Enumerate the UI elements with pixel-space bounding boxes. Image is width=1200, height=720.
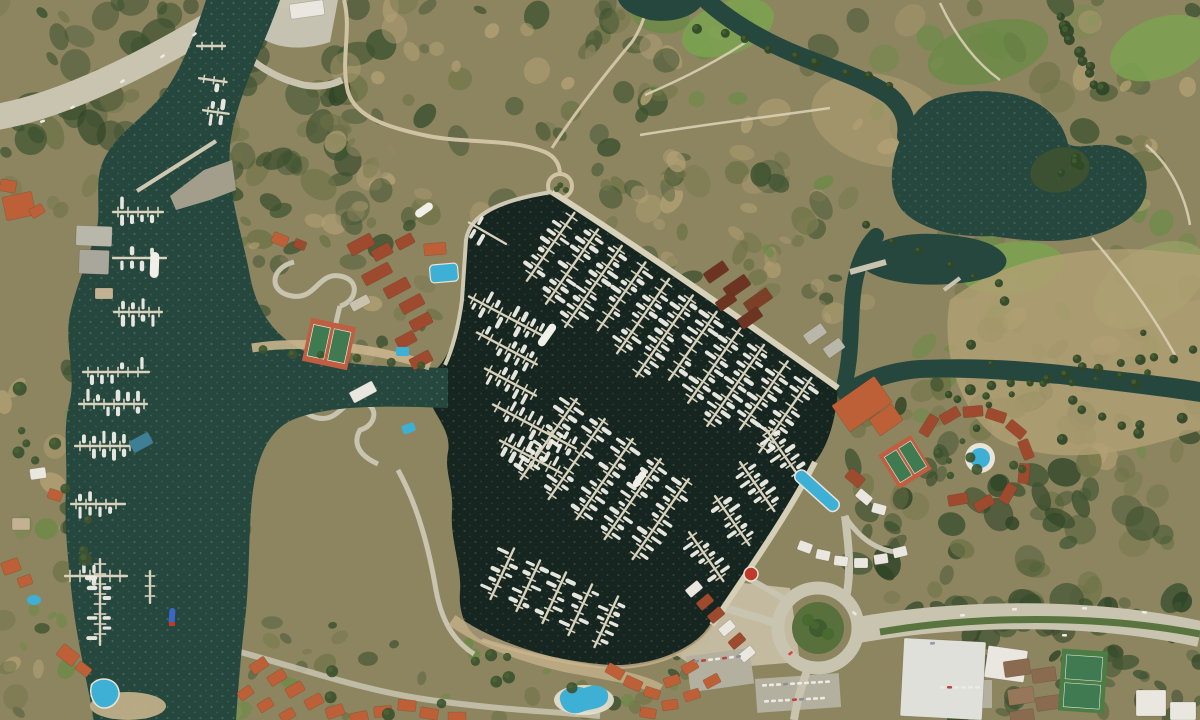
car [975, 686, 980, 689]
tree-highlight [504, 673, 510, 679]
car [940, 686, 945, 689]
car [769, 683, 774, 686]
tree-highlight [1135, 429, 1140, 434]
car [806, 697, 811, 700]
car [811, 681, 816, 684]
tree-highlight [14, 448, 19, 453]
building-roof [1136, 690, 1166, 716]
car [804, 681, 809, 684]
car [799, 698, 804, 701]
building-roof [424, 242, 447, 256]
tree-highlight [1091, 81, 1095, 85]
car [762, 684, 767, 687]
car [790, 682, 795, 685]
tree-highlight [974, 425, 977, 428]
car [1082, 607, 1087, 610]
tree-highlight [824, 630, 829, 635]
car [776, 683, 781, 686]
tree-highlight [947, 459, 950, 462]
tree-highlight [388, 359, 392, 363]
dry-fairway [947, 249, 1200, 455]
tree-highlight [1001, 297, 1005, 301]
building-roof [398, 699, 417, 712]
tree-highlight [983, 393, 986, 396]
tree-highlight [1190, 347, 1194, 351]
tree-highlight [986, 402, 989, 405]
car [1142, 611, 1147, 614]
tree-highlight [1069, 380, 1072, 383]
tree-highlight [326, 693, 331, 698]
building-roof [29, 467, 46, 480]
tree-highlight [487, 651, 493, 657]
tree-highlight [1119, 423, 1123, 427]
tree-highlight [1131, 379, 1136, 384]
tree-highlight [793, 53, 797, 57]
tree-highlight [1010, 392, 1013, 395]
tree-highlight [866, 73, 870, 77]
tree-highlight [1087, 63, 1091, 67]
tree-highlight [558, 183, 561, 186]
building-roof [1035, 694, 1061, 711]
car [792, 698, 797, 701]
car [968, 686, 973, 689]
car [771, 699, 776, 702]
car [1062, 634, 1067, 637]
tree-highlight [1065, 36, 1070, 41]
tree-highlight [1062, 26, 1068, 32]
tree-highlight [948, 473, 951, 476]
hillside-pool [27, 595, 41, 605]
tree-highlight [384, 710, 390, 716]
tree-highlight [418, 363, 422, 367]
tree-highlight [1178, 414, 1183, 419]
tree-highlight [1008, 380, 1012, 384]
tree-highlight [996, 280, 1000, 284]
tree-highlight [1170, 356, 1174, 360]
tree-highlight [1076, 48, 1081, 53]
tree-highlight [966, 386, 971, 391]
satellite-map-viewport: Satellite aerial view — coastal marina a… [0, 0, 1200, 720]
tree-highlight [1086, 70, 1090, 74]
car [960, 614, 965, 617]
tennis-courts-west [302, 318, 356, 371]
tree-highlight [890, 239, 893, 242]
car [954, 686, 959, 689]
tree-highlight [1118, 373, 1121, 376]
tree-highlight [863, 222, 867, 226]
tree-highlight [80, 547, 84, 551]
tree-highlight [1097, 83, 1103, 89]
tree-highlight [328, 667, 333, 672]
tree-highlight [886, 83, 890, 87]
tree-highlight [568, 684, 573, 689]
tennis-courts-se [1058, 648, 1108, 713]
tree-highlight [554, 187, 557, 190]
car [930, 642, 935, 645]
tree-highlight [811, 58, 816, 63]
tree-highlight [693, 25, 698, 30]
tree-highlight [973, 465, 978, 470]
car [820, 697, 825, 700]
tree-highlight [1019, 466, 1023, 470]
building-roof [1003, 658, 1031, 677]
tree [1068, 396, 1077, 405]
tree-highlight [504, 654, 508, 658]
tree-highlight [948, 262, 951, 265]
tree-highlight [354, 355, 358, 359]
boat-stern [169, 622, 175, 626]
tree-highlight [988, 382, 992, 386]
tree-highlight [1118, 360, 1122, 364]
tree-highlight [85, 517, 89, 521]
tree-highlight [1074, 356, 1078, 360]
tree-highlight [62, 485, 67, 490]
car [947, 686, 952, 689]
tree-highlight [564, 188, 567, 191]
tree-highlight [765, 46, 769, 50]
building-roof [95, 288, 113, 299]
building-roof [873, 553, 888, 565]
tree-highlight [1079, 407, 1083, 411]
tree-highlight [742, 36, 746, 40]
car [785, 699, 790, 702]
tree-highlight [1151, 354, 1155, 358]
building-roof [79, 249, 110, 274]
car [961, 686, 966, 689]
tree-highlight [1079, 57, 1083, 61]
tree-highlight [1069, 397, 1073, 401]
tree-highlight [15, 384, 21, 390]
tree-highlight [1027, 380, 1030, 383]
tree-highlight [260, 346, 264, 350]
tree-highlight [1136, 356, 1141, 361]
tree-highlight [967, 341, 971, 345]
satellite-map-canvas[interactable]: Satellite aerial view — coastal marina a… [0, 0, 1200, 720]
car [778, 699, 783, 702]
building-roof [76, 225, 113, 246]
tree-highlight [1094, 377, 1097, 380]
tree-highlight [916, 248, 920, 252]
tree-highlight [935, 449, 940, 454]
tree-highlight [989, 361, 992, 364]
tree-highlight [1095, 365, 1099, 369]
car [797, 682, 802, 685]
building-roof [854, 558, 868, 568]
building-roof [900, 638, 986, 720]
building-roof [448, 712, 466, 720]
tree-highlight [1099, 414, 1103, 418]
building-roof [963, 405, 984, 418]
car [1012, 608, 1017, 611]
tree-highlight [438, 700, 442, 704]
tree-highlight [472, 658, 476, 662]
car [825, 680, 830, 683]
building-roof [1007, 686, 1035, 705]
tree-highlight [971, 274, 974, 277]
tree-highlight [1058, 435, 1063, 440]
tree-highlight [492, 677, 497, 682]
building-roof [1170, 702, 1196, 720]
building-roof [661, 699, 678, 711]
sw-pool [91, 679, 119, 708]
car [813, 697, 818, 700]
tree-highlight [1010, 462, 1014, 466]
tree-highlight [804, 616, 809, 621]
tree-highlight [843, 69, 847, 73]
tree-highlight [19, 428, 22, 431]
tree-highlight [1079, 363, 1083, 367]
building-roof [834, 555, 849, 566]
tree-highlight [722, 30, 726, 34]
tree-highlight [23, 440, 27, 444]
tree-highlight [32, 457, 36, 461]
tree-highlight [1137, 421, 1141, 425]
building-roof [12, 518, 30, 530]
boat [150, 252, 160, 278]
tree-highlight [946, 392, 949, 395]
tree-highlight [289, 351, 293, 355]
tree-highlight [1058, 14, 1062, 18]
tree-highlight [960, 439, 963, 442]
car [783, 683, 788, 686]
tree-highlight [1044, 375, 1048, 379]
tree-highlight [1072, 158, 1077, 163]
tree-highlight [1061, 371, 1066, 376]
tree-highlight [1145, 370, 1148, 373]
tree-highlight [1058, 170, 1061, 173]
tree-highlight [318, 352, 321, 355]
tree-highlight [80, 554, 86, 560]
car [818, 681, 823, 684]
tree-highlight [967, 454, 972, 459]
building-roof [0, 179, 17, 194]
tree-highlight [1141, 331, 1144, 334]
red-kiosk [744, 567, 758, 581]
tree-highlight [954, 396, 958, 400]
tree-highlight [51, 439, 56, 444]
tree-highlight [1040, 380, 1043, 383]
car [764, 700, 769, 703]
building-roof [1031, 666, 1057, 683]
